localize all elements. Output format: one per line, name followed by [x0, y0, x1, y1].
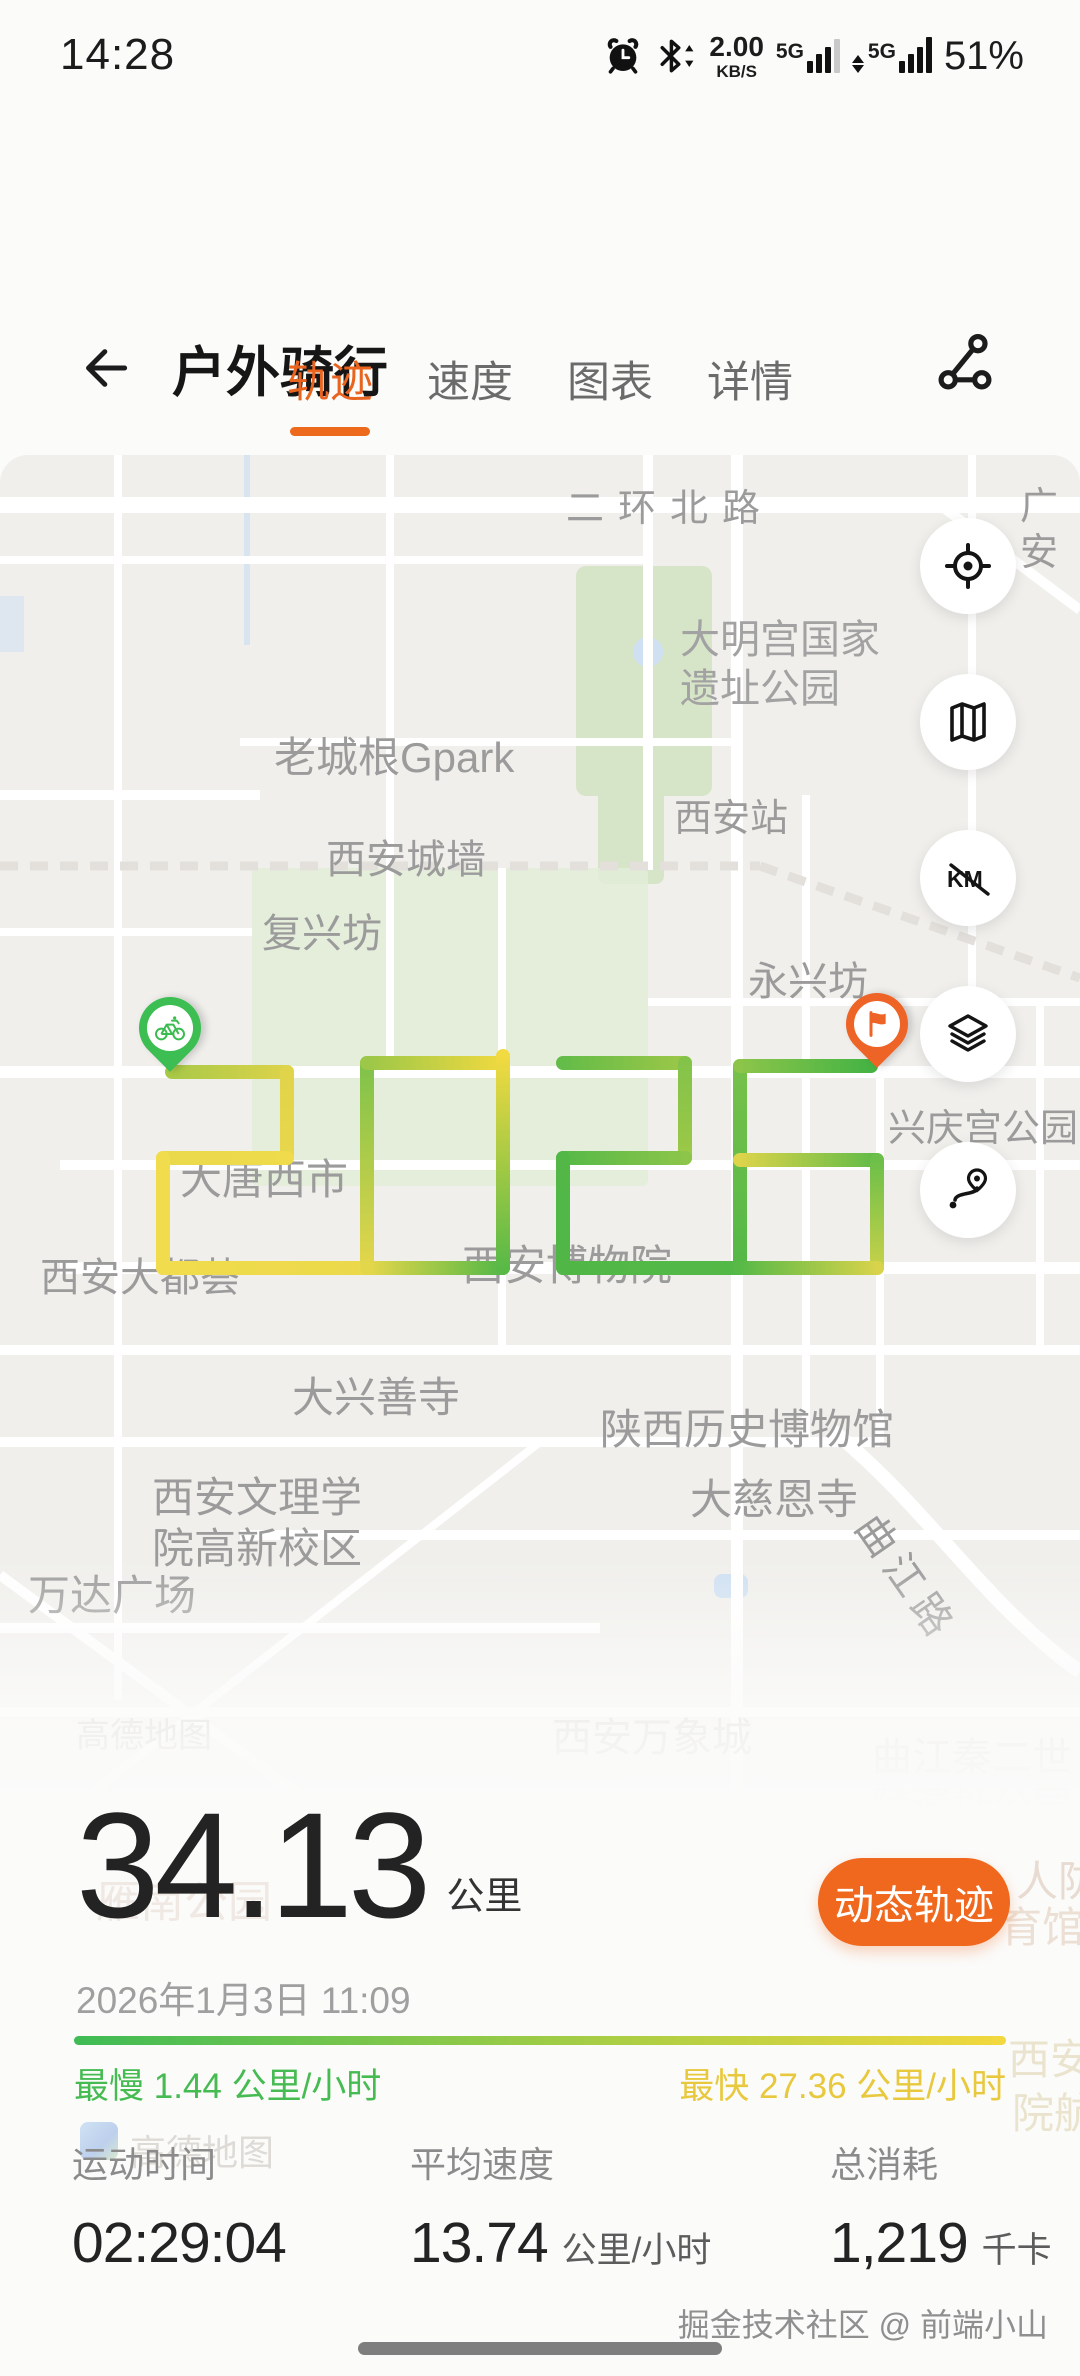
faded-map-label: 院航 [1012, 2080, 1080, 2141]
tab-underline [290, 427, 370, 436]
tab-轨迹[interactable]: 轨迹 [287, 348, 373, 436]
map-fade-overlay [0, 1560, 1080, 1810]
bike-icon [147, 1005, 193, 1051]
stat-总消耗: 总消耗1,219千卡 [830, 2136, 1052, 2276]
stat-value: 13.74 [410, 2210, 548, 2276]
stat-label: 运动时间 [72, 2136, 300, 2188]
tab-label: 详情 [707, 348, 793, 410]
sim2-signal: 5G [852, 39, 932, 73]
map-mode-icon [944, 698, 992, 746]
alarm-icon [603, 34, 643, 78]
distance-unit: 公里 [446, 1865, 522, 1934]
faded-map-label: 育馆 [1000, 1894, 1080, 1955]
stat-label: 总消耗 [830, 2136, 1052, 2188]
slowest-speed-label: 最慢 1.44 公里/小时 [74, 2058, 381, 2109]
stat-label: 平均速度 [410, 2136, 711, 2188]
km-toggle-button[interactable]: KM [920, 830, 1016, 926]
tab-underline [430, 427, 510, 436]
locate-icon [944, 542, 992, 590]
svg-text:KM: KM [947, 866, 983, 892]
signal-bars-icon [807, 39, 840, 73]
km-toggle-icon: KM [944, 854, 992, 902]
stat-value: 1,219 [830, 2210, 968, 2276]
fastest-speed-label: 最快 27.36 公里/小时 [679, 2058, 1006, 2109]
layers-button[interactable] [920, 986, 1016, 1082]
data-arrows-icon [852, 55, 864, 73]
header: 户外骑行 [0, 150, 1080, 270]
status-icons: 2.00 KB/S 5G 5G 51% [603, 26, 1024, 86]
map-canvas[interactable]: 二环北路广安大明宫国家 遗址公园老城根Gpark西安站西安城墙复兴坊永兴坊兴庆宫… [0, 455, 1080, 1810]
stat-运动时间: 运动时间02:29:04 [72, 2136, 300, 2276]
stat-value: 02:29:04 [72, 2210, 286, 2276]
activity-datetime: 2026年1月3日 11:09 [76, 1970, 411, 2024]
stat-平均速度: 平均速度13.74公里/小时 [410, 2136, 711, 2276]
battery-level: 51% [944, 34, 1024, 79]
dynamic-track-button[interactable]: 动态轨迹 [818, 1858, 1010, 1946]
speed-gradient-bar [74, 2036, 1006, 2045]
route-overview-button[interactable] [920, 1142, 1016, 1238]
distance-block: 34.13 公里 [76, 1796, 522, 1934]
tab-图表[interactable]: 图表 [567, 348, 653, 436]
stats-row: 运动时间02:29:04平均速度13.74公里/小时总消耗1,219千卡 [0, 2136, 1080, 2276]
faded-map-label: 人防 [1016, 1848, 1080, 1909]
status-time: 14:28 [60, 30, 175, 80]
bluetooth-icon [655, 34, 697, 78]
community-watermark: 掘金技术社区 @ 前端小山 [678, 2300, 1048, 2346]
tab-label: 图表 [567, 348, 653, 410]
tab-label: 轨迹 [287, 348, 373, 410]
home-indicator[interactable] [358, 2342, 722, 2355]
tab-underline [570, 427, 650, 436]
tab-bar: 轨迹速度图表详情 [0, 348, 1080, 436]
tab-underline [710, 427, 790, 436]
map-mode-button[interactable] [920, 674, 1016, 770]
faded-map-label: 西安 [1008, 2026, 1080, 2087]
flag-icon [854, 1001, 900, 1047]
layers-icon [944, 1010, 992, 1058]
tab-label: 速度 [427, 348, 513, 410]
stat-unit: 公里/小时 [562, 2222, 712, 2273]
tab-详情[interactable]: 详情 [707, 348, 793, 436]
sim1-signal: 5G [776, 39, 840, 73]
distance-value: 34.13 [76, 1796, 426, 1934]
stat-unit: 千卡 [982, 2222, 1052, 2273]
locate-button[interactable] [920, 518, 1016, 614]
network-speed: 2.00 KB/S [709, 33, 764, 80]
route-overview-icon [944, 1166, 992, 1214]
tab-速度[interactable]: 速度 [427, 348, 513, 436]
signal-bars-icon [899, 39, 932, 73]
status-bar: 14:28 2.00 KB/S 5G 5G [0, 0, 1080, 100]
